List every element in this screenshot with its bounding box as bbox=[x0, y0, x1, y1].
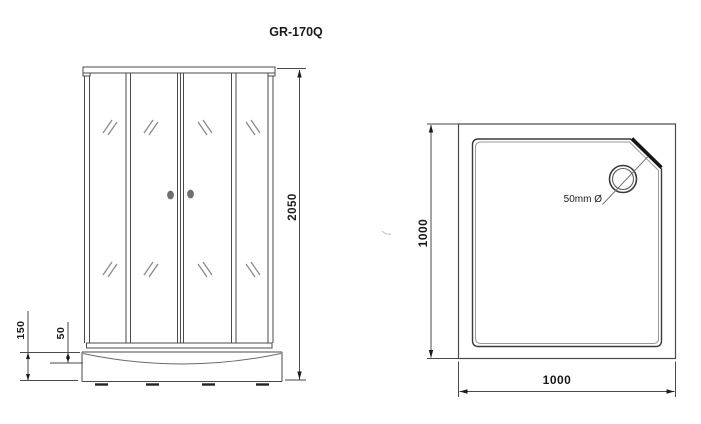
door-knob-right bbox=[187, 190, 194, 199]
shower-cabin-drawing: GR-170Q bbox=[0, 0, 701, 424]
top-view bbox=[427, 124, 676, 397]
top-bar-right-cap bbox=[268, 73, 275, 76]
drain-hole-inner bbox=[613, 169, 634, 190]
dim-width-label: 1000 bbox=[543, 373, 572, 387]
top-bar-left-cap bbox=[83, 73, 90, 76]
door-knob-left bbox=[167, 191, 174, 200]
bottom-frame-rail bbox=[87, 343, 273, 348]
dim-tray-height-150 bbox=[20, 311, 80, 381]
tray-curve bbox=[83, 354, 281, 365]
top-frame-bar bbox=[83, 67, 275, 73]
dim-height-label: 2050 bbox=[287, 193, 299, 221]
dim-tray-height-label: 150 bbox=[15, 320, 27, 339]
corner-chamfer bbox=[632, 139, 662, 168]
technical-drawing-canvas: GR-170Q bbox=[0, 0, 701, 424]
drain-size-label: 50mm Ø bbox=[564, 194, 603, 205]
dim-height-2050 bbox=[277, 69, 306, 381]
shower-tray-front bbox=[82, 352, 282, 382]
scan-artifact bbox=[382, 231, 391, 234]
dim-depth-label: 1000 bbox=[416, 219, 430, 248]
tray-outer-square bbox=[459, 124, 676, 359]
panel-frame-lines bbox=[85, 73, 274, 343]
dim-tray-depth-label: 50 bbox=[55, 327, 67, 340]
drain-hole-outer bbox=[610, 166, 637, 193]
dim-depth-1000 bbox=[427, 124, 458, 359]
page-title: GR-170Q bbox=[269, 25, 323, 39]
